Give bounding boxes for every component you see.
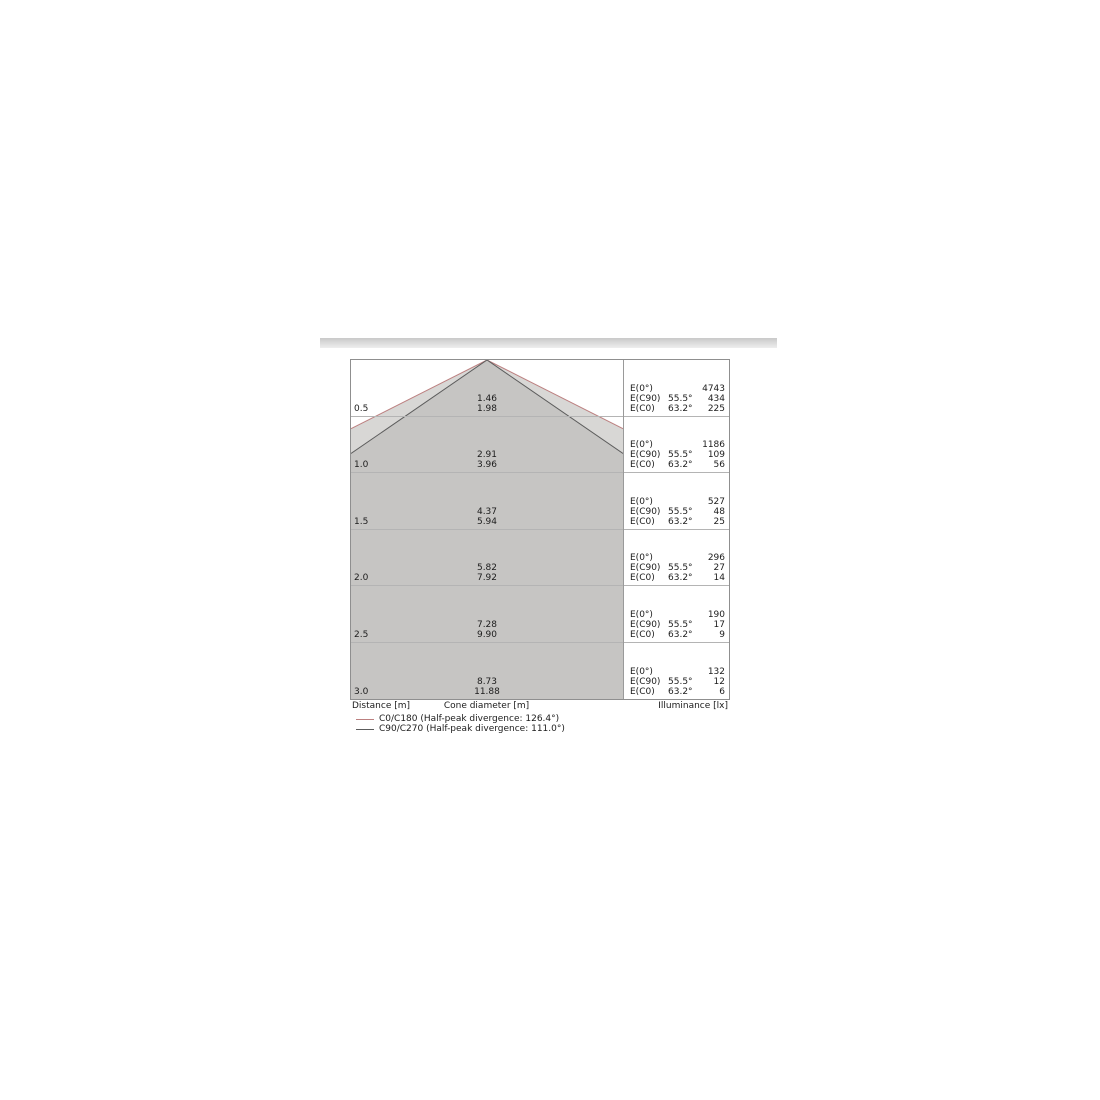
ec0-value: 25 <box>704 517 725 527</box>
cone-diameter-values: 5.82 7.92 <box>351 563 623 583</box>
legend: C0/C180 (Half-peak divergence: 126.4°) C… <box>356 714 565 734</box>
table-divider <box>623 360 624 699</box>
cone-diameter-axis-label: Cone diameter [m] <box>350 701 623 711</box>
e0-value: 1186 <box>702 440 725 450</box>
e0-angle <box>668 610 704 620</box>
ec90-value: 48 <box>704 507 725 517</box>
ec90-value: 17 <box>704 620 725 630</box>
e0-label: E(0°) <box>630 667 668 677</box>
ec90-label: E(C90) <box>630 507 668 517</box>
cone-diameter-c0: 5.94 <box>351 517 623 527</box>
legend-label-c0: C0/C180 (Half-peak divergence: 126.4°) <box>379 714 559 724</box>
ec0-angle: 63.2° <box>668 404 704 414</box>
illuminance-block: E(0°)527 E(C90)55.5°48 E(C0)63.2°25 <box>624 497 729 527</box>
ec0-value: 225 <box>704 404 725 414</box>
ec90-value: 434 <box>704 394 725 404</box>
cone-diameter-c0: 3.96 <box>351 460 623 470</box>
cone-diameter-values: 1.46 1.98 <box>351 394 623 414</box>
cone-diameter-c90: 8.73 <box>351 677 623 687</box>
cone-row: 3.0 8.73 11.88 E(0°)132 E(C90)55.5°12 E(… <box>351 643 729 700</box>
axis-labels: Distance [m] Cone diameter [m] Illuminan… <box>350 701 730 711</box>
ec90-angle: 55.5° <box>668 507 704 517</box>
cone-diameter-c90: 2.91 <box>351 450 623 460</box>
ec90-label: E(C90) <box>630 563 668 573</box>
section-divider-bar <box>320 338 777 348</box>
e0-value: 190 <box>704 610 725 620</box>
cone-diameter-c90: 1.46 <box>351 394 623 404</box>
ec90-value: 109 <box>704 450 725 460</box>
ec0-value: 9 <box>704 630 725 640</box>
e0-angle <box>667 440 702 450</box>
cone-diagram-panel: 0.5 1.46 1.98 E(0°)4743 E(C90)55.5°434 E… <box>320 338 777 740</box>
cone-diameter-values: 4.37 5.94 <box>351 507 623 527</box>
e0-angle <box>667 384 702 394</box>
ec0-label: E(C0) <box>630 460 668 470</box>
legend-label-c90: C90/C270 (Half-peak divergence: 111.0°) <box>379 724 565 734</box>
cone-row: 1.5 4.37 5.94 E(0°)527 E(C90)55.5°48 E(C… <box>351 473 729 530</box>
ec90-angle: 55.5° <box>668 450 704 460</box>
e0-label: E(0°) <box>630 553 668 563</box>
ec90-angle: 55.5° <box>668 677 704 687</box>
ec90-label: E(C90) <box>630 620 668 630</box>
ec0-value: 56 <box>704 460 725 470</box>
ec0-angle: 63.2° <box>668 687 704 697</box>
legend-item-c90: C90/C270 (Half-peak divergence: 111.0°) <box>356 724 565 734</box>
e0-angle <box>668 553 704 563</box>
e0-label: E(0°) <box>630 384 667 394</box>
cone-diameter-c0: 11.88 <box>351 687 623 697</box>
cone-diameter-c90: 5.82 <box>351 563 623 573</box>
cone-row: 2.0 5.82 7.92 E(0°)296 E(C90)55.5°27 E(C… <box>351 530 729 587</box>
ec90-label: E(C90) <box>630 450 668 460</box>
cone-diameter-values: 8.73 11.88 <box>351 677 623 697</box>
illuminance-block: E(0°)4743 E(C90)55.5°434 E(C0)63.2°225 <box>624 384 729 414</box>
ec0-label: E(C0) <box>630 687 668 697</box>
ec0-label: E(C0) <box>630 517 668 527</box>
ec90-angle: 55.5° <box>668 563 704 573</box>
legend-item-c0: C0/C180 (Half-peak divergence: 126.4°) <box>356 714 565 724</box>
illuminance-block: E(0°)1186 E(C90)55.5°109 E(C0)63.2°56 <box>624 440 729 470</box>
e0-value: 4743 <box>702 384 725 394</box>
ec90-angle: 55.5° <box>668 394 704 404</box>
illuminance-block: E(0°)132 E(C90)55.5°12 E(C0)63.2°6 <box>624 667 729 697</box>
ec0-label: E(C0) <box>630 404 668 414</box>
e0-label: E(0°) <box>630 610 668 620</box>
ec0-angle: 63.2° <box>668 517 704 527</box>
ec90-angle: 55.5° <box>668 620 704 630</box>
cone-diameter-c0: 9.90 <box>351 630 623 640</box>
ec90-label: E(C90) <box>630 677 668 687</box>
ec0-angle: 63.2° <box>668 460 704 470</box>
cone-diameter-values: 7.28 9.90 <box>351 620 623 640</box>
e0-angle <box>668 667 704 677</box>
ec0-angle: 63.2° <box>668 573 704 583</box>
e0-angle <box>668 497 704 507</box>
e0-label: E(0°) <box>630 440 667 450</box>
ec0-label: E(C0) <box>630 573 668 583</box>
ec0-value: 14 <box>704 573 725 583</box>
cone-diameter-c0: 7.92 <box>351 573 623 583</box>
e0-value: 296 <box>704 553 725 563</box>
c90-line-swatch <box>356 729 374 730</box>
e0-value: 132 <box>704 667 725 677</box>
cone-diameter-c90: 4.37 <box>351 507 623 517</box>
rows-container: 0.5 1.46 1.98 E(0°)4743 E(C90)55.5°434 E… <box>351 360 729 699</box>
ec90-value: 27 <box>704 563 725 573</box>
e0-value: 527 <box>704 497 725 507</box>
cone-diameter-values: 2.91 3.96 <box>351 450 623 470</box>
ec0-label: E(C0) <box>630 630 668 640</box>
illuminance-block: E(0°)190 E(C90)55.5°17 E(C0)63.2°9 <box>624 610 729 640</box>
cone-diameter-c0: 1.98 <box>351 404 623 414</box>
ec0-value: 6 <box>704 687 725 697</box>
ec90-value: 12 <box>704 677 725 687</box>
cone-row: 2.5 7.28 9.90 E(0°)190 E(C90)55.5°17 E(C… <box>351 586 729 643</box>
chart-area: 0.5 1.46 1.98 E(0°)4743 E(C90)55.5°434 E… <box>350 359 730 700</box>
illuminance-axis-label: Illuminance [lx] <box>658 701 728 711</box>
ec90-label: E(C90) <box>630 394 668 404</box>
e0-label: E(0°) <box>630 497 668 507</box>
cone-row: 1.0 2.91 3.96 E(0°)1186 E(C90)55.5°109 E… <box>351 417 729 474</box>
cone-diameter-c90: 7.28 <box>351 620 623 630</box>
cone-row: 0.5 1.46 1.98 E(0°)4743 E(C90)55.5°434 E… <box>351 360 729 417</box>
illuminance-block: E(0°)296 E(C90)55.5°27 E(C0)63.2°14 <box>624 553 729 583</box>
c0-line-swatch <box>356 719 374 720</box>
ec0-angle: 63.2° <box>668 630 704 640</box>
